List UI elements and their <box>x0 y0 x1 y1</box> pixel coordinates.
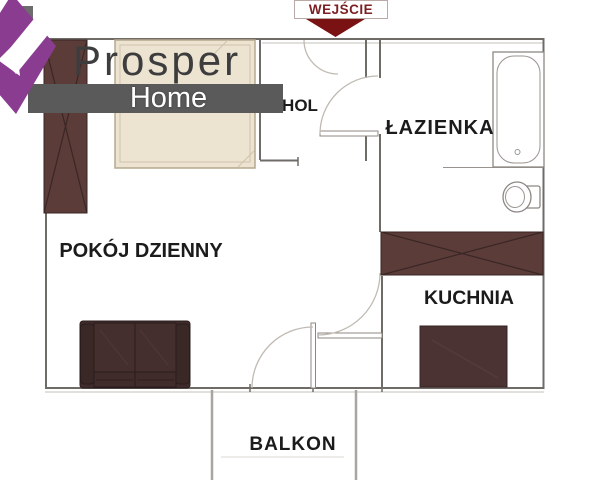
sofa-icon <box>80 321 190 388</box>
sofa-arm-left <box>81 324 95 384</box>
bathtub-icon <box>493 52 544 167</box>
brand-subtitle: Home <box>96 84 241 113</box>
brand-title: Prosper <box>73 40 241 82</box>
room-label-lazienka: ŁAZIENKA <box>378 117 502 140</box>
room-label-balkon: BALKON <box>241 434 345 456</box>
kitchen-table-body <box>420 326 507 387</box>
brand-logo-icon <box>0 0 64 132</box>
room-label-pokoj-dzienny: POKÓJ DZIENNY <box>53 240 229 263</box>
entrance-arrow-icon <box>306 19 365 37</box>
entrance-door-arc <box>304 40 338 74</box>
sofa-seat-right <box>135 372 176 387</box>
entrance-label: WEJŚCIE <box>294 0 388 19</box>
living-kitchen-wall-stub <box>311 323 316 388</box>
bathroom-door-leaf <box>320 131 378 136</box>
kitchen-counter-icon <box>381 232 543 275</box>
balcony-door-arc <box>252 327 313 388</box>
room-label-kuchnia: KUCHNIA <box>417 287 521 310</box>
kitchen-door-arc <box>318 273 380 335</box>
sofa-seat-left <box>94 372 135 387</box>
floorplan-canvas: HOL ŁAZIENKA POKÓJ DZIENNY KUCHNIA BALKO… <box>0 0 600 480</box>
sofa-cushion-right <box>135 323 176 372</box>
kitchen-table-icon <box>420 326 507 387</box>
sofa-arm-right <box>176 324 190 384</box>
toilet-icon <box>503 182 540 212</box>
